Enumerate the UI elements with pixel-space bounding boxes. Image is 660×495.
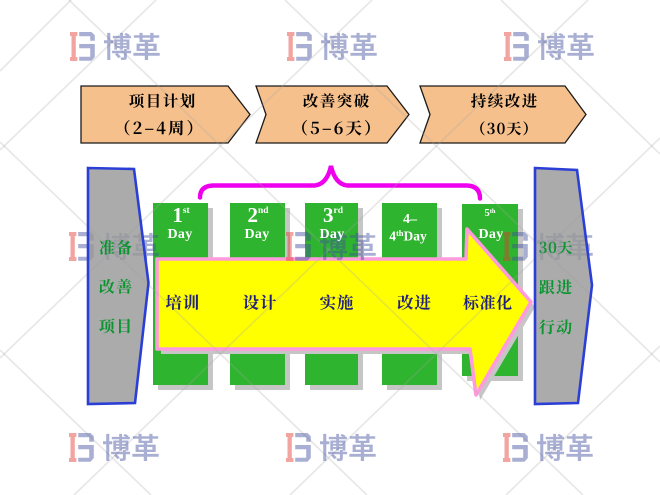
svg-text:4–: 4– bbox=[403, 212, 418, 227]
svg-text:Day: Day bbox=[478, 227, 503, 242]
svg-text:4thDay: 4thDay bbox=[389, 228, 427, 244]
svg-text:Day: Day bbox=[167, 227, 192, 242]
svg-text:Day: Day bbox=[244, 227, 269, 242]
svg-text:Day: Day bbox=[319, 227, 344, 242]
